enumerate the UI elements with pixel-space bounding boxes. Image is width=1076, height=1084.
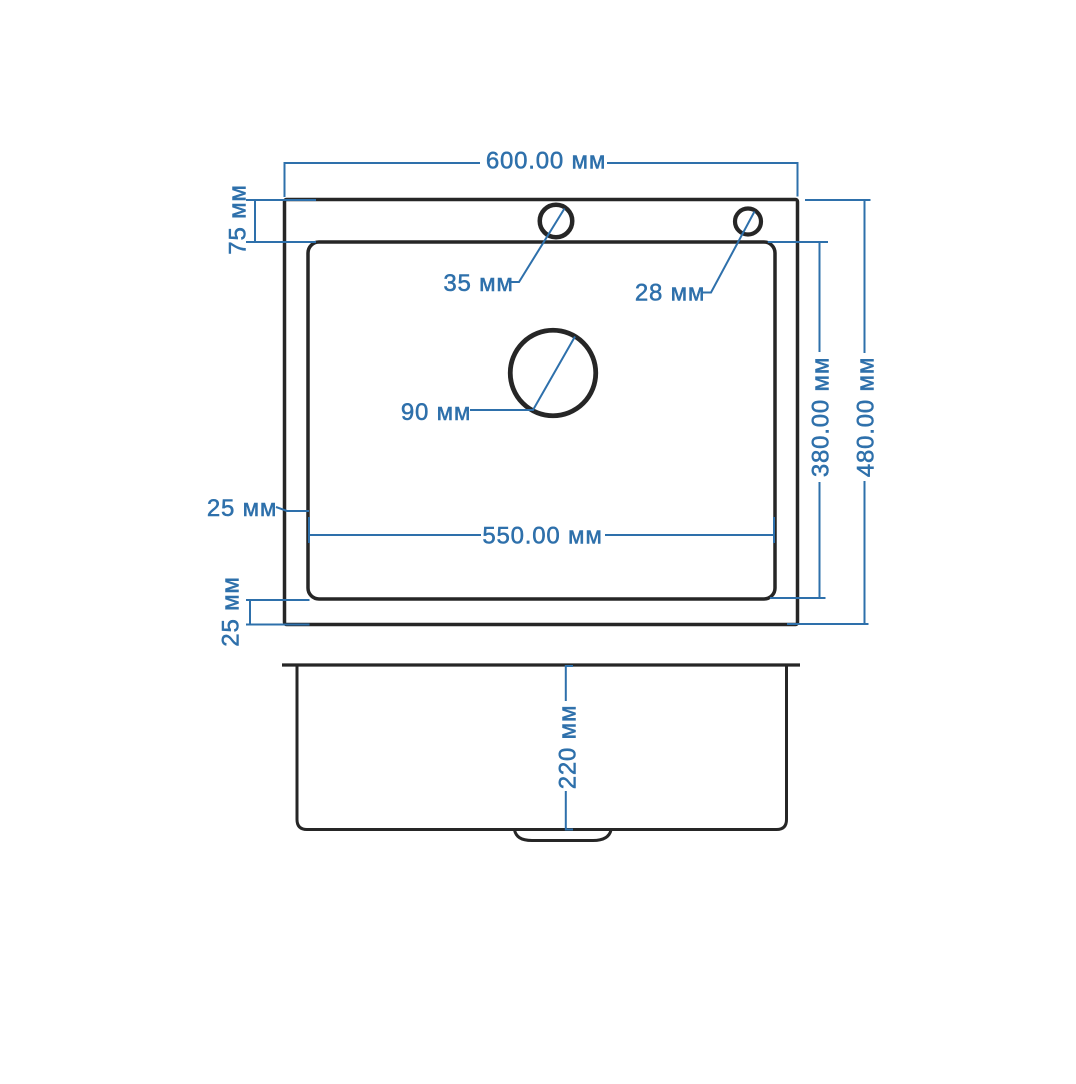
svg-text:550.00 мм: 550.00 мм [482, 523, 602, 550]
svg-text:90 мм: 90 мм [401, 399, 471, 426]
svg-text:25 мм: 25 мм [218, 576, 245, 646]
svg-text:600.00 мм: 600.00 мм [486, 148, 606, 175]
svg-text:25 мм: 25 мм [207, 495, 277, 522]
svg-text:75 мм: 75 мм [225, 184, 252, 254]
svg-text:480.00 мм: 480.00 мм [853, 357, 880, 477]
svg-text:35 мм: 35 мм [443, 270, 513, 297]
svg-text:380.00 мм: 380.00 мм [808, 357, 835, 477]
svg-text:220 мм: 220 мм [555, 705, 582, 790]
svg-text:28 мм: 28 мм [635, 280, 705, 307]
